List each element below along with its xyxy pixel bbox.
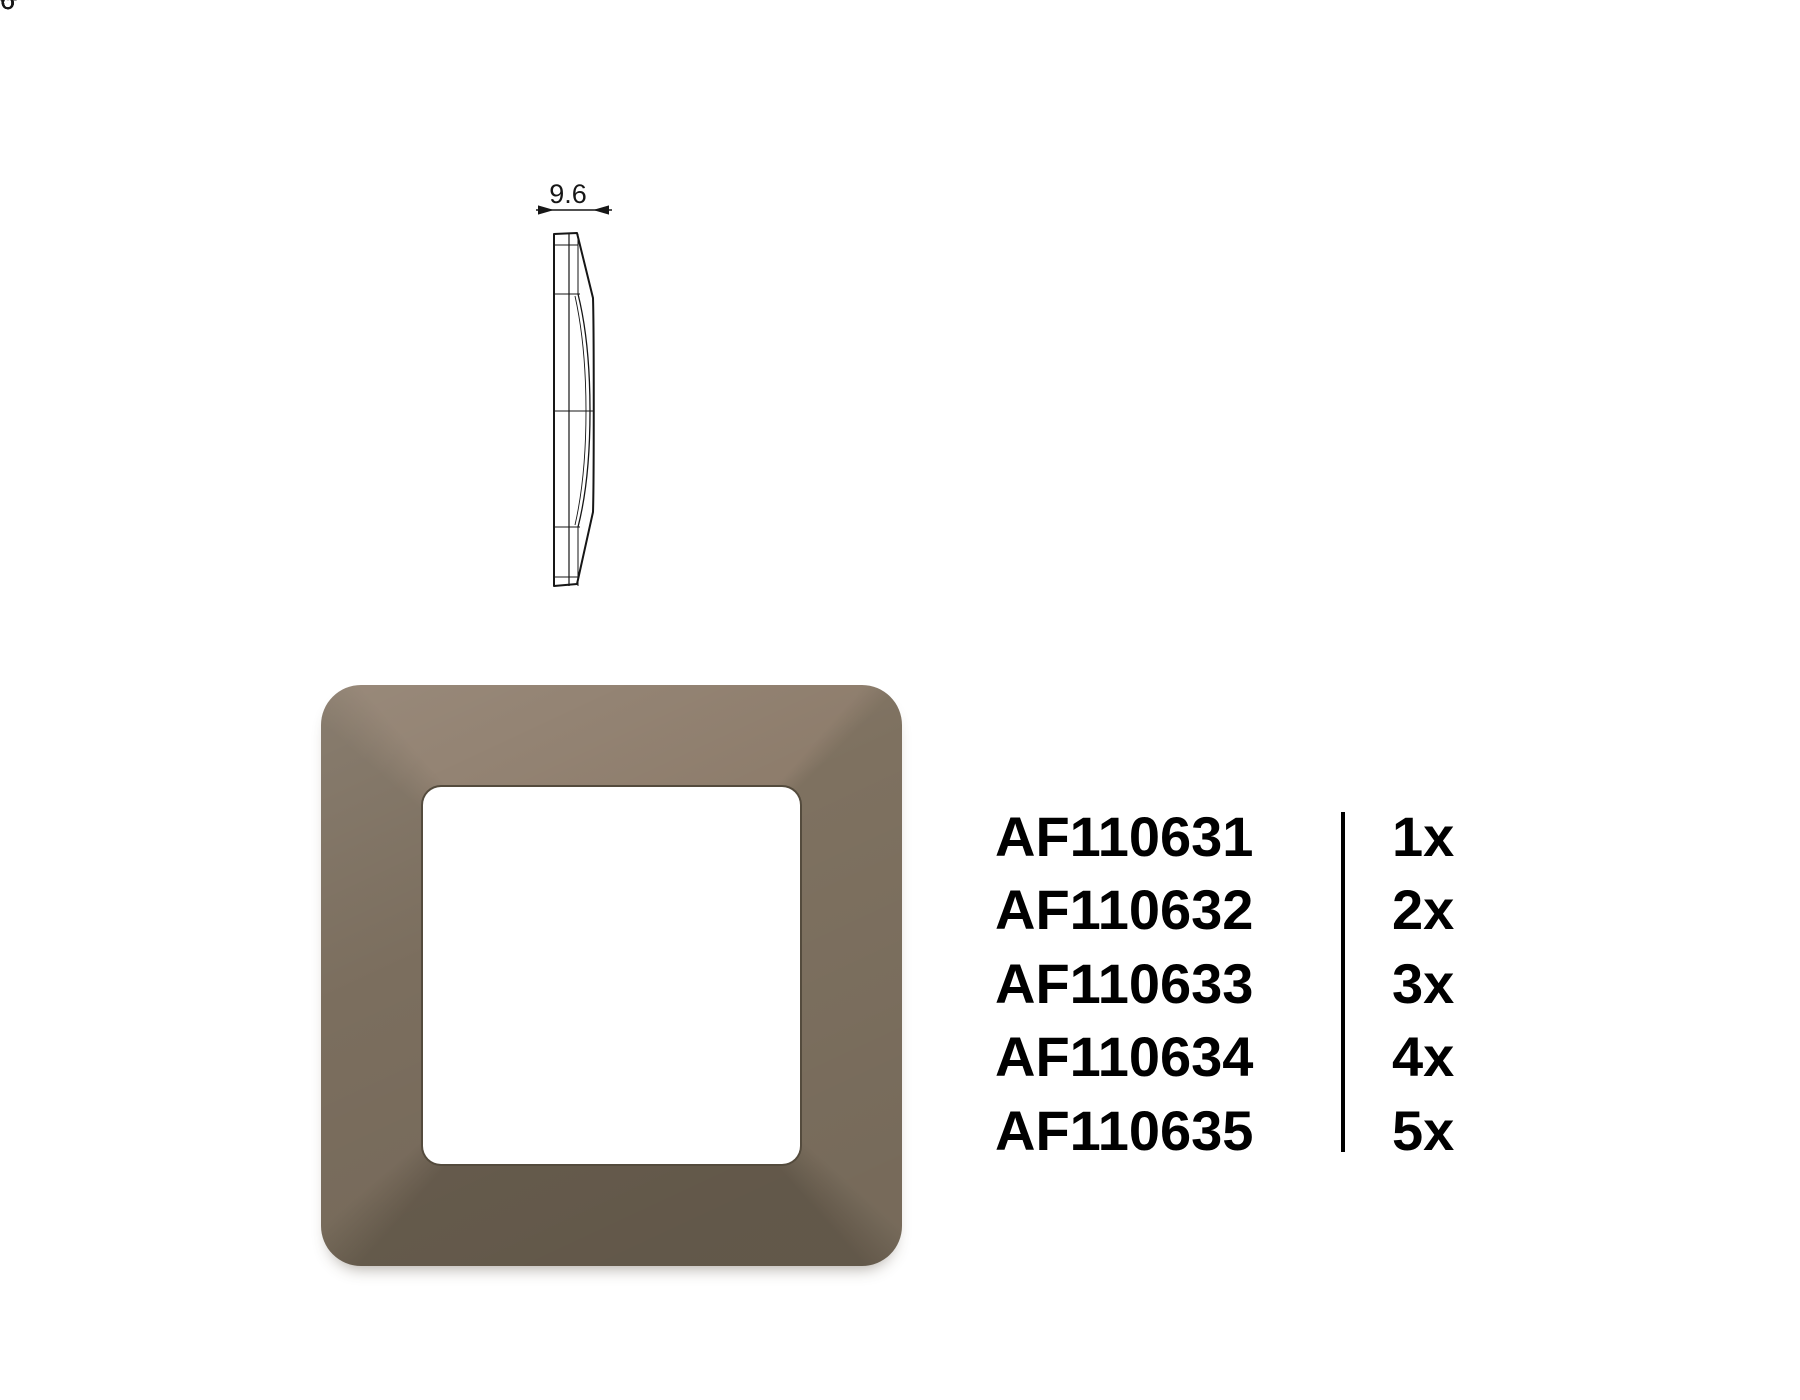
gang-quantity: 2x [1392, 873, 1454, 946]
gang-quantity: 5x [1392, 1094, 1454, 1167]
product-code-row: AF1106322x [995, 873, 1555, 946]
product-code-row: AF1106333x [995, 947, 1555, 1020]
product-code-row: AF1106355x [995, 1094, 1555, 1167]
product-code: AF110631 [995, 800, 1345, 873]
product-photo-window [423, 787, 800, 1164]
dimension-label: 86 [0, 0, 15, 15]
gang-quantity: 3x [1392, 947, 1454, 1020]
product-code: AF110632 [995, 873, 1345, 946]
gang-quantity: 4x [1392, 1020, 1454, 1093]
product-code-row: AF1106311x [995, 800, 1555, 873]
product-code-row: AF1106344x [995, 1020, 1555, 1093]
side-profile-view: 9.6 [536, 179, 612, 586]
datasheet-page: 8686156863708622886298869.6 AF1106311xAF… [0, 0, 1800, 1400]
dimension-label: 9.6 [549, 179, 587, 209]
4-gang-frame-front-view: 29886 [0, 0, 23, 15]
product-code: AF110633 [995, 947, 1345, 1020]
gang-quantity: 1x [1392, 800, 1454, 873]
product-code: AF110635 [995, 1094, 1345, 1167]
code-qty-divider [1341, 812, 1345, 1152]
product-code-list: AF1106311xAF1106322xAF1106333xAF1106344x… [995, 800, 1555, 1167]
product-code: AF110634 [995, 1020, 1345, 1093]
product-photo-frame [321, 685, 902, 1266]
